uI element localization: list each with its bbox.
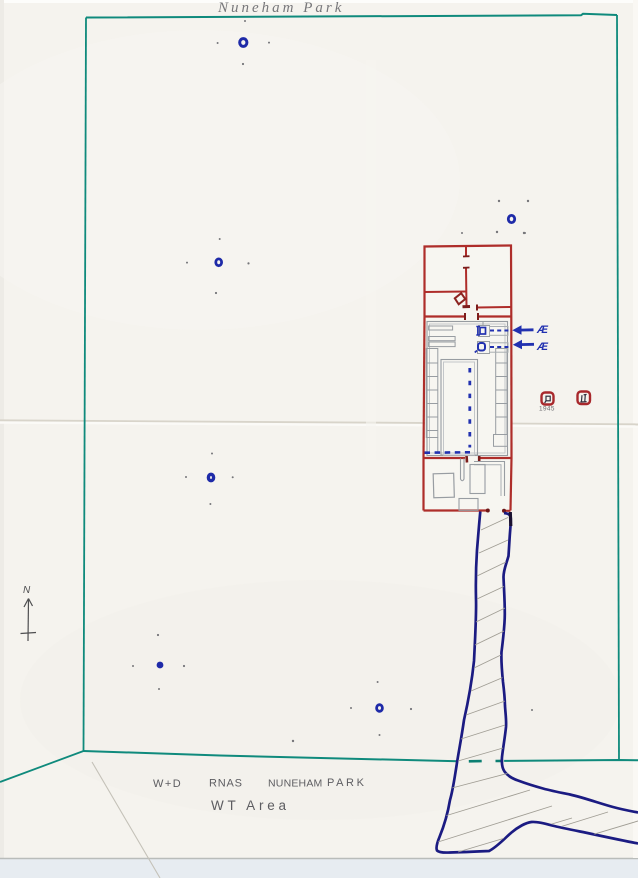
svg-text:Æ: Æ [536, 324, 549, 336]
svg-text:NUNEHAM: NUNEHAM [268, 778, 323, 790]
svg-text:WT Area: WT Area [211, 798, 290, 813]
svg-text:Nuneham Park: Nuneham Park [217, 0, 344, 16]
svg-text:1945: 1945 [539, 406, 555, 413]
svg-text:RNAS: RNAS [209, 778, 243, 790]
svg-text:Æ: Æ [536, 341, 549, 353]
svg-text:N: N [23, 585, 31, 596]
svg-text:PARK: PARK [327, 777, 367, 789]
svg-text:W+D: W+D [153, 778, 182, 790]
